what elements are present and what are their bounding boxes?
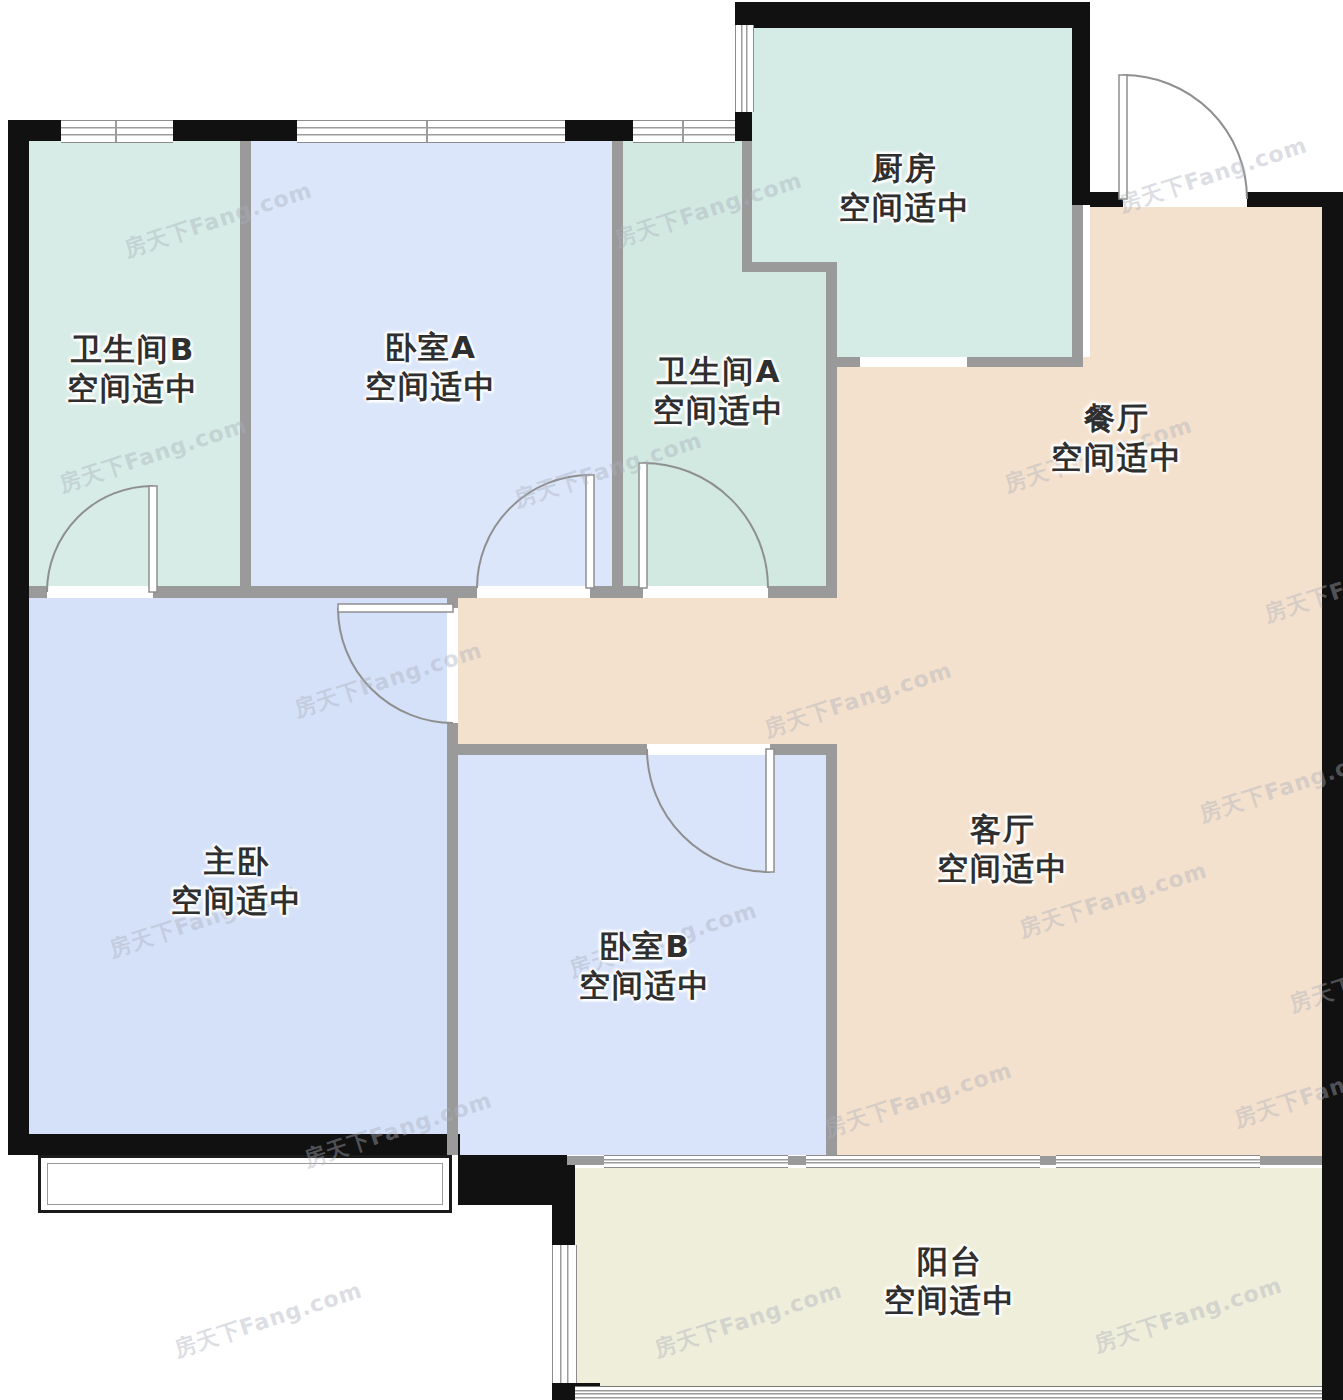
- room-name: 客厅: [937, 810, 1069, 849]
- label-kitchen: 厨房 空间适中: [839, 149, 971, 227]
- label-dining: 餐厅 空间适中: [1051, 399, 1183, 477]
- room-note: 空间适中: [1051, 438, 1183, 477]
- room-name: 卫生间B: [67, 330, 199, 369]
- room-name: 主卧: [171, 842, 303, 881]
- label-bedroom-a: 卧室A 空间适中: [365, 328, 497, 406]
- room-name: 卫生间A: [653, 352, 785, 391]
- room-name: 厨房: [839, 149, 971, 188]
- room-note: 空间适中: [579, 966, 711, 1005]
- room-name: 卧室A: [365, 328, 497, 367]
- room-note: 空间适中: [884, 1281, 1016, 1320]
- room-note: 空间适中: [937, 849, 1069, 888]
- floor-plan-canvas: 房天下Fang.com房天下Fang.com房天下Fang.com房天下Fang…: [0, 0, 1343, 1400]
- label-bathroom-a: 卫生间A 空间适中: [653, 352, 785, 430]
- room-note: 空间适中: [839, 188, 971, 227]
- label-bathroom-b: 卫生间B 空间适中: [67, 330, 199, 408]
- room-note: 空间适中: [67, 369, 199, 408]
- label-master-bedroom: 主卧 空间适中: [171, 842, 303, 920]
- label-balcony: 阳台 空间适中: [884, 1242, 1016, 1320]
- room-note: 空间适中: [171, 881, 303, 920]
- room-note: 空间适中: [653, 391, 785, 430]
- label-living: 客厅 空间适中: [937, 810, 1069, 888]
- label-bedroom-b: 卧室B 空间适中: [579, 927, 711, 1005]
- room-note: 空间适中: [365, 367, 497, 406]
- room-name: 卧室B: [579, 927, 711, 966]
- room-name: 餐厅: [1051, 399, 1183, 438]
- room-name: 阳台: [884, 1242, 1016, 1281]
- label-layer: 厨房 空间适中 卫生间B 空间适中 卧室A 空间适中 卫生间A 空间适中 餐厅 …: [0, 0, 1343, 1400]
